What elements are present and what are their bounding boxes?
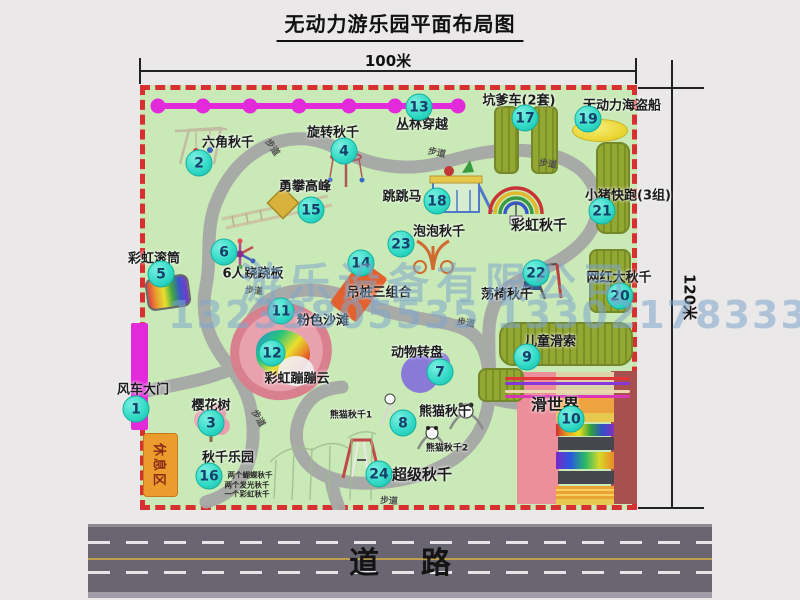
road-edge [88,592,712,598]
dimension-top-label: 100米 [365,50,411,71]
animal-carousel-icon [428,352,450,374]
cherry-tree-icon [194,404,230,442]
dimension-right-line [671,88,673,508]
hexagon-swing-icon [175,128,227,164]
super-swing-icon [343,440,380,478]
rest-area-label: 休息区 [151,442,170,487]
pirate-ship-icon [572,119,628,142]
rest-area: 休息区 [143,433,178,497]
page-title: 无动力游乐园平面布局图 [277,8,524,42]
big-swing-icon [589,249,631,313]
dimension-top-tick-left [139,58,141,84]
zipline-node-icon [451,99,466,114]
zipline-node-icon [292,99,307,114]
rainbow-roller-icon [144,273,192,312]
zipline-cable-icon [505,377,630,380]
slide-world-strip [558,437,614,450]
zipline-cable-icon [505,382,630,385]
pit-cart-icon-2 [531,106,558,174]
dimension-right-stub [671,60,673,88]
dimension-right-tick-top [638,87,704,89]
zipline-node-icon [243,99,258,114]
piggy-run-track-icon [596,142,630,234]
swing-park-sketch [270,432,376,500]
slide-world-rainbow-strip [556,452,614,469]
slide-world-strip [556,486,614,499]
slide-world-strip [556,413,614,422]
zipline-node-icon [196,99,211,114]
zipline-node-icon [342,99,357,114]
slide-world-rainbow-strip [556,424,614,436]
slide-world-strip [556,499,614,505]
pit-cart-icon-1 [494,106,519,174]
windmill-gate-icon [131,323,148,430]
white-cloud-icon [278,356,314,386]
road: 道 路 [88,524,712,592]
road-label: 道 路 [349,538,451,582]
dimension-top-tick-right [635,58,637,84]
kids-zipline-icon [499,322,633,366]
climbing-peak-icon [222,187,332,228]
slide-world-strip [556,396,614,413]
seesaw-spinner-icon [225,239,256,270]
zipline-cable-icon [505,395,630,398]
slide-world-strip [558,471,614,484]
rainbow-swing-arcs-icon [490,188,542,224]
bubble-swing-icon [414,241,453,273]
zipline-node-icon [388,99,403,114]
zipline-node-icon [151,99,166,114]
dimension-right-label: 120米 [680,274,701,320]
dimension-right-tick-bottom [638,507,704,509]
zipline-cable-icon [505,390,630,393]
page: 无动力游乐园平面布局图 100米 120米 [0,0,800,600]
